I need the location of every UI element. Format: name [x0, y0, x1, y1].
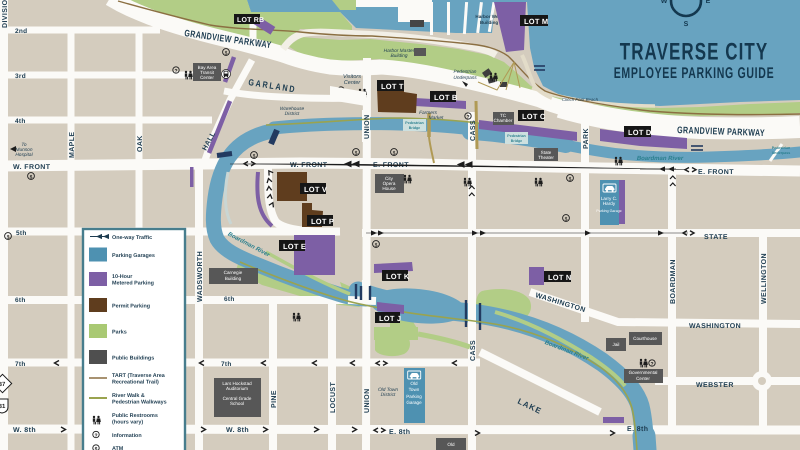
svg-text:STATE: STATE: [704, 234, 728, 241]
svg-text:Building: Building: [390, 53, 407, 59]
svg-text:WEBSTER: WEBSTER: [696, 382, 734, 389]
svg-text:Pedestrian: Pedestrian: [507, 134, 525, 138]
svg-text:TRAVERSE CITY: TRAVERSE CITY: [620, 39, 769, 66]
svg-text:Old: Old: [410, 381, 418, 386]
svg-text:School: School: [230, 401, 244, 406]
svg-text:LOT K: LOT K: [386, 272, 410, 281]
svg-text:W: W: [661, 0, 668, 5]
svg-text:Boardman River: Boardman River: [637, 155, 684, 162]
svg-text:UNION: UNION: [364, 114, 371, 139]
svg-text:Building: Building: [225, 276, 242, 281]
svg-text:TART (Traverse Area: TART (Traverse Area: [112, 373, 166, 379]
svg-text:LOT V: LOT V: [304, 185, 327, 194]
svg-text:6th: 6th: [15, 297, 26, 304]
svg-text:Pedestrian: Pedestrian: [454, 69, 477, 75]
svg-text:Hospital: Hospital: [15, 152, 33, 158]
svg-text:5th: 5th: [16, 230, 27, 237]
svg-text:6th: 6th: [224, 296, 235, 303]
svg-text:4th: 4th: [15, 118, 26, 125]
svg-text:(hours vary): (hours vary): [112, 420, 143, 426]
svg-text:WADSWORTH: WADSWORTH: [197, 251, 204, 302]
svg-text:Center: Center: [344, 80, 362, 86]
svg-text:Clinch Park Beach: Clinch Park Beach: [562, 97, 599, 102]
svg-text:Recreational Trail): Recreational Trail): [112, 380, 159, 386]
svg-text:EMPLOYEE PARKING GUIDE: EMPLOYEE PARKING GUIDE: [614, 65, 775, 82]
svg-text:District: District: [381, 392, 396, 398]
svg-text:PINE: PINE: [271, 390, 278, 408]
svg-text:Public Restrooms: Public Restrooms: [112, 413, 158, 419]
svg-text:Pedestrian: Pedestrian: [772, 146, 790, 150]
svg-text:Pedestrian Walkways: Pedestrian Walkways: [112, 400, 167, 406]
svg-text:Underpass: Underpass: [772, 151, 791, 155]
svg-text:DIVISION: DIVISION: [2, 0, 9, 28]
svg-text:Building: Building: [480, 20, 499, 25]
svg-text:Carnegie: Carnegie: [224, 270, 243, 275]
svg-text:Parks: Parks: [112, 330, 127, 336]
svg-text:LOT M: LOT M: [524, 17, 548, 26]
svg-text:House: House: [382, 186, 396, 191]
svg-text:Underpass: Underpass: [453, 75, 477, 81]
svg-text:S: S: [684, 21, 689, 28]
svg-text:OAK: OAK: [137, 135, 144, 152]
svg-text:ATM: ATM: [112, 446, 124, 450]
svg-text:LOT P: LOT P: [311, 217, 334, 226]
svg-text:LOT B: LOT B: [434, 93, 458, 102]
svg-text:LOT N: LOT N: [548, 273, 572, 282]
svg-text:E. FRONT: E. FRONT: [698, 169, 734, 176]
svg-text:Center: Center: [200, 75, 214, 80]
svg-text:Hardy: Hardy: [603, 201, 616, 206]
svg-text:E. 8th: E. 8th: [627, 425, 648, 433]
svg-text:LOT RB: LOT RB: [237, 17, 264, 24]
svg-text:10-Hour: 10-Hour: [112, 274, 133, 280]
svg-text:Information: Information: [112, 433, 142, 439]
svg-text:River Walk &: River Walk &: [112, 393, 145, 399]
svg-text:W. 8th: W. 8th: [226, 426, 249, 434]
svg-text:WELLINGTON: WELLINGTON: [761, 253, 768, 304]
svg-text:Courthouse: Courthouse: [633, 336, 657, 341]
svg-text:2nd: 2nd: [15, 28, 27, 35]
svg-text:Parking: Parking: [406, 394, 422, 399]
svg-text:W. FRONT: W. FRONT: [13, 164, 51, 171]
svg-text:Permit Parking: Permit Parking: [112, 304, 150, 310]
svg-text:LOT E: LOT E: [283, 242, 306, 251]
svg-text:W. FRONT: W. FRONT: [290, 162, 328, 169]
svg-text:LOT T: LOT T: [381, 82, 404, 91]
svg-text:3rd: 3rd: [15, 73, 26, 80]
svg-text:Auditorium: Auditorium: [226, 386, 248, 391]
svg-text:MAPLE: MAPLE: [69, 132, 76, 159]
svg-text:Jail: Jail: [613, 342, 620, 347]
svg-text:Bridge: Bridge: [409, 126, 420, 130]
svg-text:37: 37: [0, 381, 6, 388]
svg-text:Public Buildings: Public Buildings: [112, 356, 154, 362]
svg-text:31: 31: [0, 403, 6, 410]
svg-text:E: E: [706, 0, 711, 5]
svg-text:E. 8th: E. 8th: [389, 428, 410, 436]
svg-text:7th: 7th: [221, 361, 232, 368]
svg-text:$: $: [95, 446, 98, 450]
svg-text:CASS: CASS: [470, 340, 477, 361]
svg-text:$: $: [30, 174, 33, 180]
svg-text:LOT J: LOT J: [379, 314, 401, 323]
svg-text:PARK: PARK: [583, 128, 590, 149]
svg-text:Pedestrian: Pedestrian: [405, 121, 423, 125]
svg-text:LOCUST: LOCUST: [330, 382, 337, 413]
svg-text:Bridge: Bridge: [511, 139, 522, 143]
svg-text:One-way Traffic: One-way Traffic: [112, 235, 152, 241]
svg-text:District: District: [285, 111, 300, 117]
svg-text:Old: Old: [447, 442, 455, 447]
svg-text:Town: Town: [409, 387, 420, 392]
svg-text:Market: Market: [429, 115, 444, 121]
svg-text:7th: 7th: [15, 361, 26, 368]
svg-text:WASHINGTON: WASHINGTON: [689, 323, 741, 330]
svg-text:W. 8th: W. 8th: [13, 426, 36, 434]
svg-text:?: ?: [94, 433, 97, 439]
svg-text:Center: Center: [636, 376, 650, 381]
svg-text:Chamber: Chamber: [494, 118, 513, 123]
svg-text:Garage: Garage: [406, 400, 422, 405]
svg-text:Governmental: Governmental: [629, 370, 658, 375]
svg-text:Parking Garages: Parking Garages: [112, 253, 155, 259]
svg-text:UNION: UNION: [364, 388, 371, 413]
svg-text:CASS: CASS: [470, 120, 477, 141]
svg-text:BOARDMAN: BOARDMAN: [670, 259, 677, 304]
svg-text:LOT C: LOT C: [522, 112, 546, 121]
svg-text:LOT D: LOT D: [628, 128, 652, 137]
svg-text:Parking Garage: Parking Garage: [596, 209, 621, 213]
svg-text:Metered Parking: Metered Parking: [112, 281, 154, 287]
svg-text:Theater: Theater: [538, 155, 554, 160]
